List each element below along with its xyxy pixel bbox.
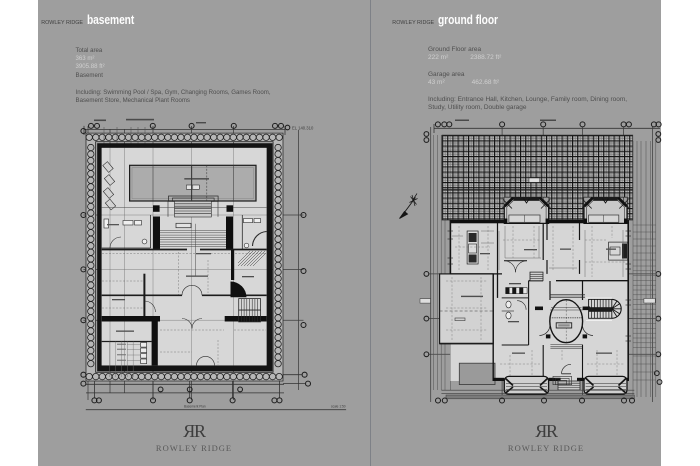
svg-text:EL 140.310: EL 140.310 bbox=[292, 126, 314, 131]
svg-text:Basement Plan: Basement Plan bbox=[184, 404, 206, 408]
svg-text:scale 1:50: scale 1:50 bbox=[331, 404, 346, 408]
